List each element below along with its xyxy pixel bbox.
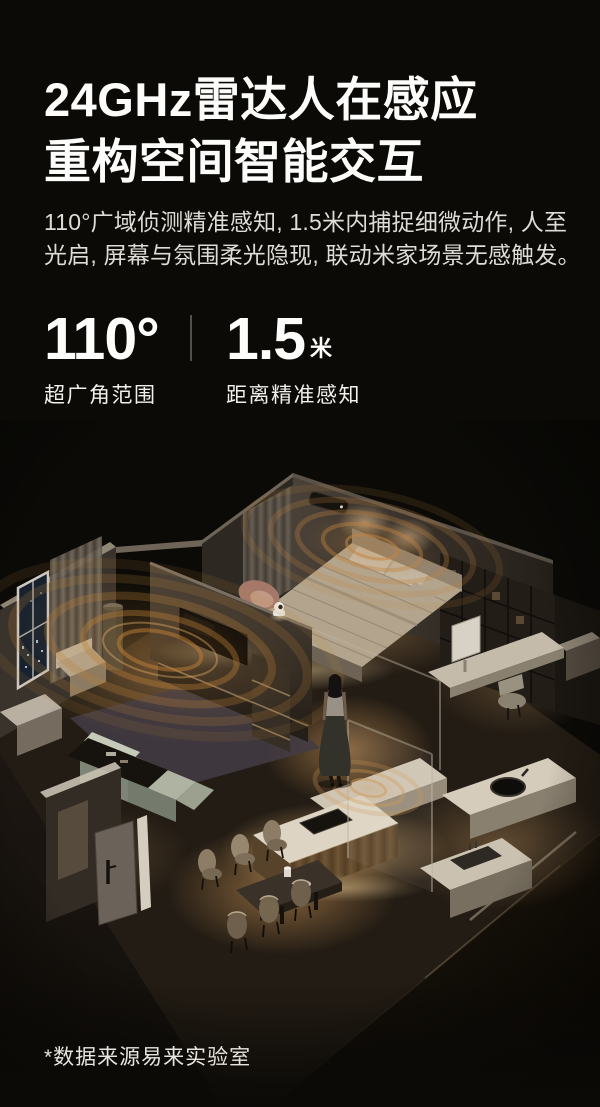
stat-value: 110° xyxy=(44,310,159,368)
promo-page: 24GHz雷达人在感应 重构空间智能交互 110°广域侦测精准感知, 1.5米内… xyxy=(0,0,600,1107)
stat-unit: 米 xyxy=(310,331,332,363)
stats-row: 110° 超广角范围 1.5 米 距离精准感知 xyxy=(44,310,361,409)
title-line-1: 24GHz雷达人在感应 xyxy=(44,69,478,131)
page-title: 24GHz雷达人在感应 重构空间智能交互 xyxy=(44,69,478,193)
stat-distance: 1.5 米 距离精准感知 xyxy=(226,310,361,409)
stat-value: 1.5 xyxy=(226,310,305,368)
description-line-2: 光启, 屏幕与氛围柔光隐现, 联动米家场景无感触发。 xyxy=(44,239,581,272)
stat-wide-angle: 110° 超广角范围 xyxy=(44,310,190,409)
stat-label: 超广角范围 xyxy=(44,379,190,409)
stat-label: 距离精准感知 xyxy=(226,379,361,409)
footnote: *数据来源易来实验室 xyxy=(44,1041,251,1071)
description: 110°广域侦测精准感知, 1.5米内捕捉细微动作, 人至 光启, 屏幕与氛围柔… xyxy=(44,206,581,272)
description-line-1: 110°广域侦测精准感知, 1.5米内捕捉细微动作, 人至 xyxy=(44,206,581,239)
apartment-scene xyxy=(0,420,600,1107)
title-line-2: 重构空间智能交互 xyxy=(44,131,478,193)
stat-divider xyxy=(190,315,192,361)
